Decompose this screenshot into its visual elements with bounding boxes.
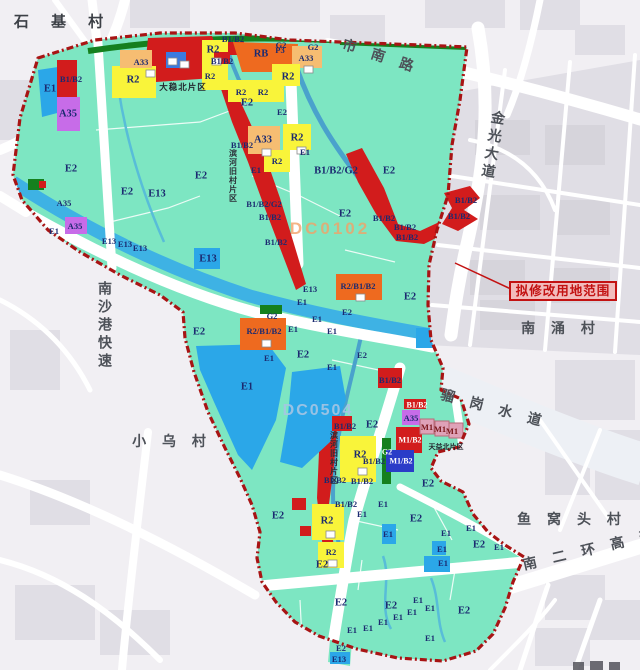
modification-scope-callout: 拟修改用地范围 [509, 281, 617, 301]
map-canvas [0, 0, 640, 670]
zone-m1b2 [386, 450, 414, 472]
zone-e13-blue [194, 248, 220, 269]
zone-a33 [120, 50, 152, 68]
zone-a35 [57, 97, 80, 131]
planning-map: 石 基 村市 南 路金光大道南 涌 村骝 岗 水 道鱼 窝 头 村南 二 环 高… [0, 0, 640, 670]
partial-watermark [573, 661, 620, 670]
